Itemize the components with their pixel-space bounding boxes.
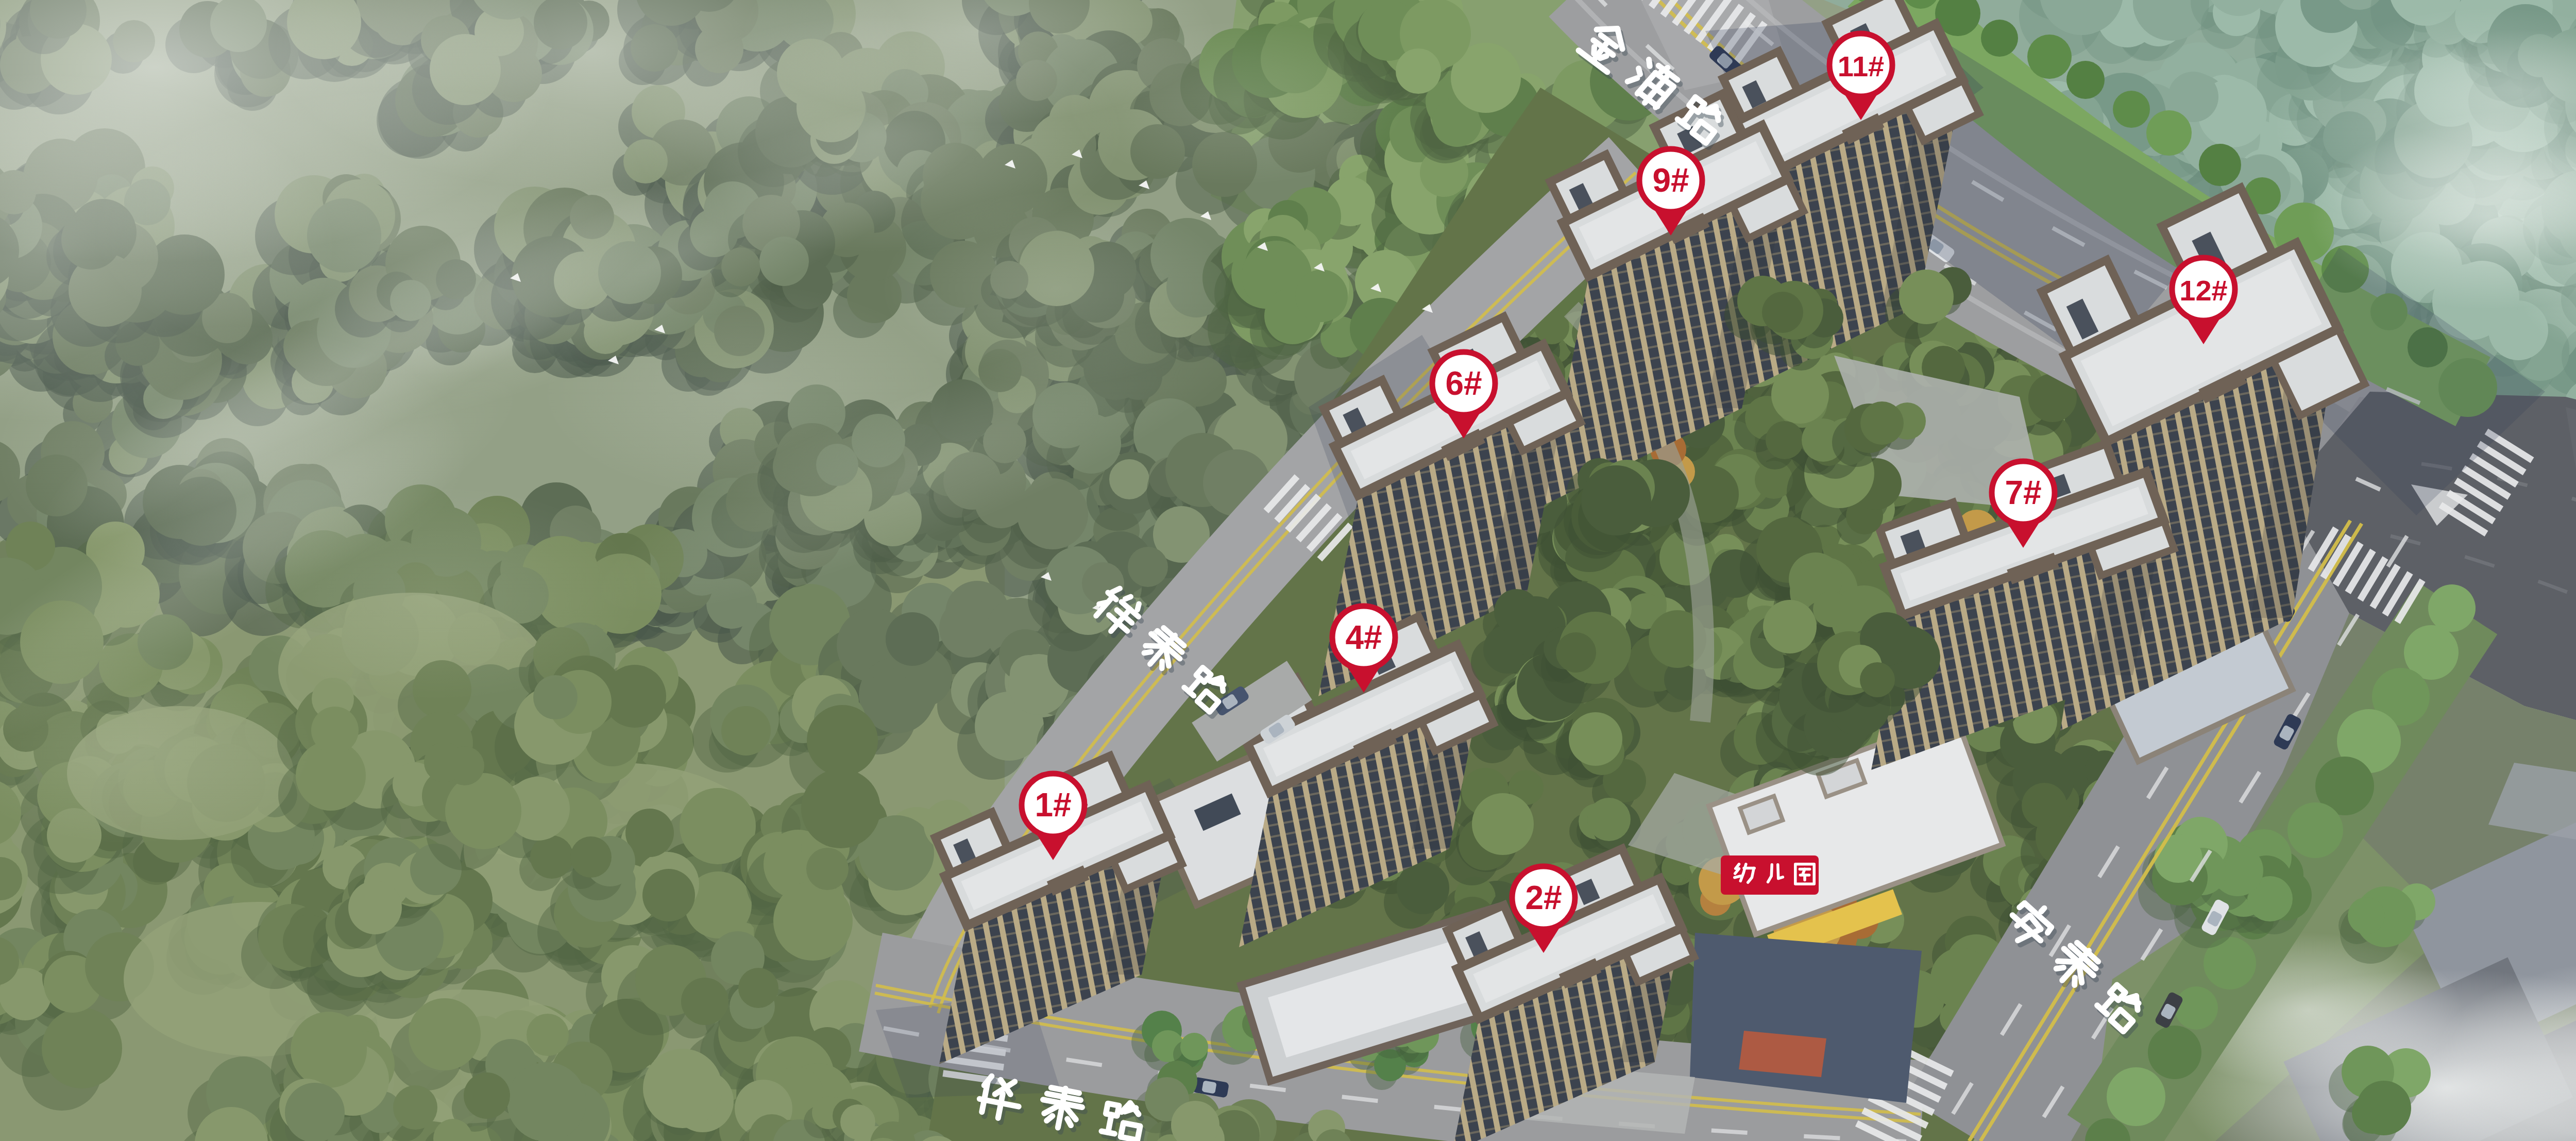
svg-text:11#: 11# [1838, 50, 1884, 82]
svg-text:1#: 1# [1035, 786, 1071, 824]
svg-text:7#: 7# [2005, 474, 2041, 511]
svg-text:4#: 4# [1345, 619, 1382, 656]
svg-text:9#: 9# [1652, 162, 1689, 199]
svg-text:12#: 12# [2179, 274, 2227, 307]
svg-text:6#: 6# [1445, 365, 1482, 402]
svg-text:2#: 2# [1525, 879, 1562, 916]
